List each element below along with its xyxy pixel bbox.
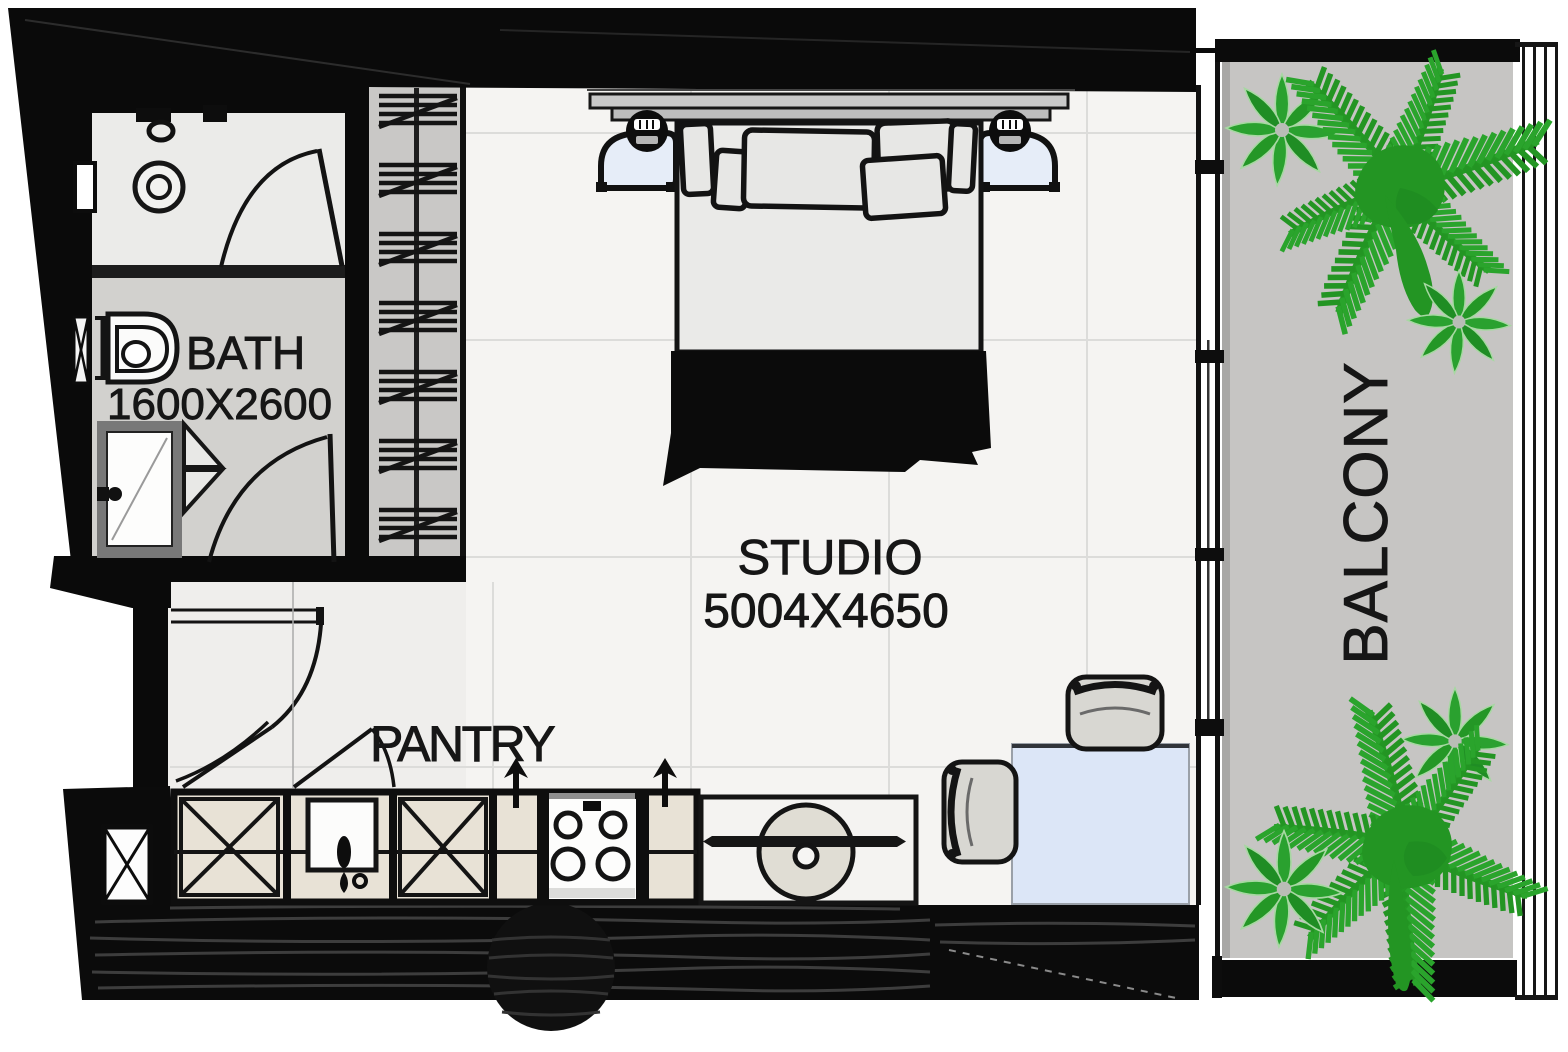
svg-text:1600X2600: 1600X2600 (107, 380, 332, 429)
svg-text:BATH: BATH (186, 327, 305, 379)
svg-text:STUDIO: STUDIO (737, 531, 922, 585)
svg-text:5004X4650: 5004X4650 (703, 585, 949, 638)
svg-text:BALCONY: BALCONY (1332, 361, 1401, 664)
svg-text:PANTRY: PANTRY (370, 716, 555, 772)
